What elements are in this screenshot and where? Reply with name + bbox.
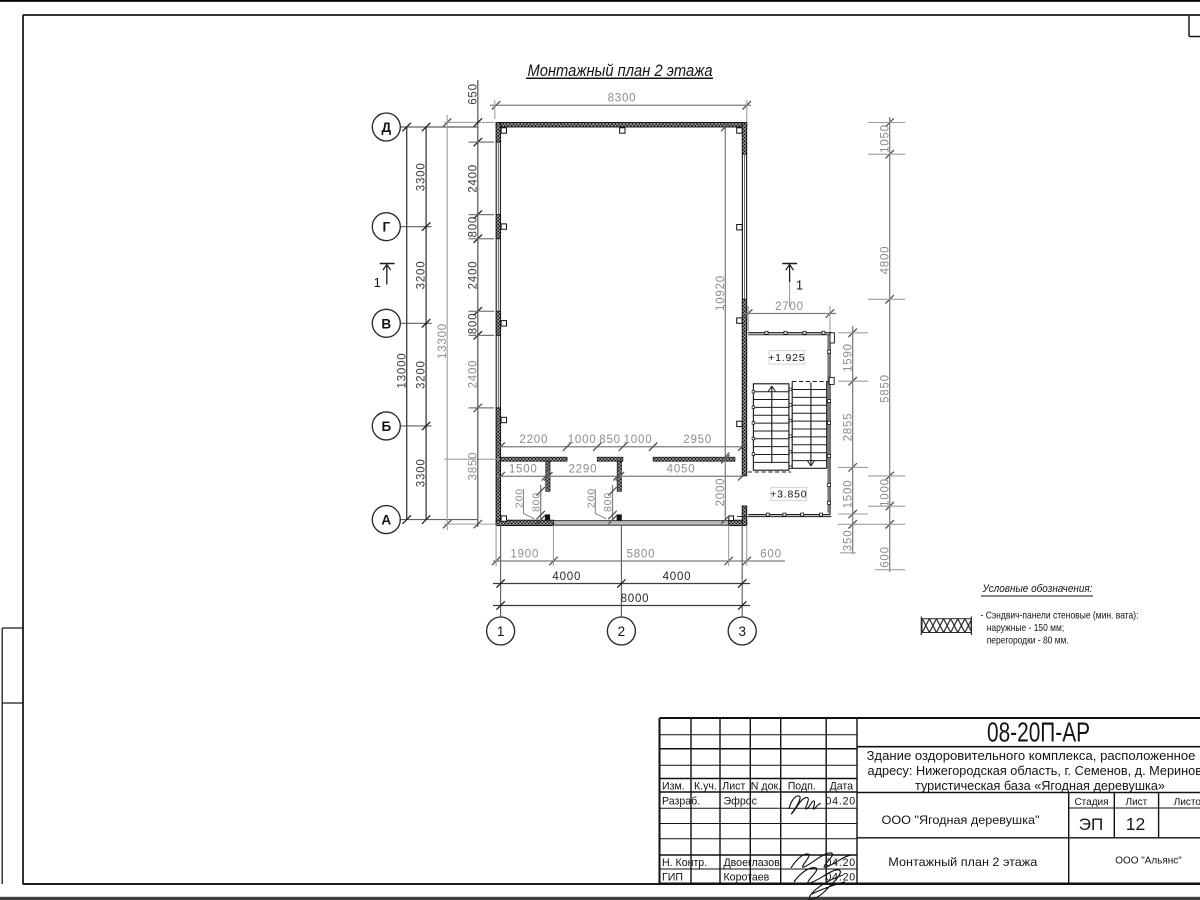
svg-text:Эфрос: Эфрос bbox=[724, 796, 758, 808]
svg-text:1000: 1000 bbox=[880, 478, 892, 507]
svg-text:Коротаев: Коротаев bbox=[724, 871, 770, 883]
svg-text:3300: 3300 bbox=[416, 458, 428, 487]
svg-text:Здание оздоровительного компле: Здание оздоровительного комплекса, распо… bbox=[867, 749, 1200, 763]
svg-text:Изм.: Изм. bbox=[662, 780, 685, 792]
svg-text:1: 1 bbox=[796, 278, 803, 293]
svg-text:К.уч.: К.уч. bbox=[694, 780, 717, 792]
svg-text:200: 200 bbox=[585, 488, 597, 508]
svg-text:Д: Д bbox=[381, 120, 391, 135]
svg-text:+1.925: +1.925 bbox=[768, 352, 805, 364]
svg-text:перегородки - 80 мм.: перегородки - 80 мм. bbox=[987, 635, 1069, 647]
svg-text:2200: 2200 bbox=[519, 434, 548, 446]
svg-text:2400: 2400 bbox=[467, 360, 479, 389]
svg-text:2000: 2000 bbox=[715, 478, 727, 507]
svg-text:4000: 4000 bbox=[663, 571, 692, 583]
svg-text:Условные обозначения:: Условные обозначения: bbox=[982, 583, 1093, 595]
svg-text:4000: 4000 bbox=[552, 571, 581, 583]
svg-text:Лист: Лист bbox=[722, 780, 745, 792]
svg-text:Лист: Лист bbox=[1126, 797, 1148, 808]
svg-text:2400: 2400 bbox=[467, 261, 479, 290]
svg-text:13000: 13000 bbox=[396, 353, 408, 389]
svg-text:800: 800 bbox=[467, 313, 479, 335]
svg-text:12: 12 bbox=[1126, 814, 1145, 834]
svg-text:Монтажный план 2 этажа: Монтажный план 2 этажа bbox=[528, 62, 713, 80]
svg-text:- Сэндвич-панели стеновые (мин: - Сэндвич-панели стеновые (мин. вата): bbox=[981, 610, 1139, 622]
svg-text:3: 3 bbox=[738, 624, 746, 639]
svg-text:650: 650 bbox=[467, 83, 479, 105]
svg-text:10920: 10920 bbox=[715, 275, 727, 311]
svg-text:N док.: N док. bbox=[751, 780, 781, 792]
svg-text:1000: 1000 bbox=[624, 434, 653, 446]
svg-text:200: 200 bbox=[514, 488, 526, 508]
svg-text:В: В bbox=[381, 316, 391, 331]
svg-text:600: 600 bbox=[880, 546, 892, 568]
svg-text:Подп.: Подп. bbox=[788, 780, 816, 792]
svg-text:1500: 1500 bbox=[509, 464, 538, 476]
svg-text:8000: 8000 bbox=[621, 593, 650, 605]
svg-text:3200: 3200 bbox=[416, 360, 428, 389]
svg-text:адресу: Нижегородская область,: адресу: Нижегородская область, г. Семено… bbox=[868, 764, 1200, 778]
svg-text:2400: 2400 bbox=[467, 164, 479, 193]
svg-text:08-20П-АР: 08-20П-АР bbox=[987, 717, 1090, 748]
svg-text:ООО "Альянс": ООО "Альянс" bbox=[1115, 856, 1182, 867]
svg-text:туристическая база «Ягодная де: туристическая база «Ягодная деревушка» bbox=[915, 779, 1165, 793]
svg-text:4800: 4800 bbox=[880, 246, 892, 275]
svg-text:ГИП: ГИП bbox=[662, 871, 683, 883]
svg-text:А: А bbox=[381, 513, 391, 528]
svg-text:800: 800 bbox=[602, 492, 614, 512]
svg-text:5850: 5850 bbox=[880, 374, 892, 403]
svg-text:1050: 1050 bbox=[880, 124, 892, 153]
svg-text:Разраб.: Разраб. bbox=[662, 796, 700, 808]
svg-text:Двоеглазов: Двоеглазов bbox=[724, 857, 781, 869]
svg-text:наружные - 150 мм;: наружные - 150 мм; bbox=[987, 622, 1064, 634]
svg-text:3850: 3850 bbox=[467, 452, 479, 481]
svg-text:Дата: Дата bbox=[830, 780, 854, 792]
svg-text:2: 2 bbox=[618, 624, 626, 639]
svg-text:1500: 1500 bbox=[843, 480, 855, 509]
svg-text:1: 1 bbox=[497, 624, 505, 639]
svg-text:2700: 2700 bbox=[775, 301, 804, 313]
svg-text:13300: 13300 bbox=[437, 323, 449, 359]
svg-text:2290: 2290 bbox=[568, 464, 597, 476]
svg-text:Монтажный план 2 этажа: Монтажный план 2 этажа bbox=[888, 855, 1037, 869]
svg-text:ООО "Ягодная деревушка": ООО "Ягодная деревушка" bbox=[882, 813, 1040, 827]
svg-text:800: 800 bbox=[467, 216, 479, 238]
svg-text:Стадия: Стадия bbox=[1074, 797, 1108, 808]
svg-text:Г: Г bbox=[382, 220, 390, 235]
svg-text:ЭП: ЭП bbox=[1079, 815, 1103, 834]
svg-text:04.20: 04.20 bbox=[825, 796, 856, 808]
svg-text:3200: 3200 bbox=[416, 261, 428, 290]
svg-text:1590: 1590 bbox=[843, 343, 855, 372]
svg-text:8300: 8300 bbox=[608, 93, 637, 105]
svg-text:800: 800 bbox=[530, 492, 542, 512]
svg-text:1900: 1900 bbox=[510, 549, 539, 561]
svg-text:3300: 3300 bbox=[416, 162, 428, 191]
svg-text:2950: 2950 bbox=[683, 434, 712, 446]
svg-text:2855: 2855 bbox=[843, 413, 855, 442]
svg-text:Б: Б bbox=[381, 419, 391, 434]
svg-text:5800: 5800 bbox=[627, 549, 656, 561]
svg-text:600: 600 bbox=[760, 549, 782, 561]
svg-text:350: 350 bbox=[843, 530, 855, 552]
svg-text:4050: 4050 bbox=[667, 464, 696, 476]
svg-text:850: 850 bbox=[599, 434, 621, 446]
svg-text:1000: 1000 bbox=[568, 434, 597, 446]
svg-text:Н. Контр.: Н. Контр. bbox=[662, 857, 707, 869]
svg-text:Листов: Листов bbox=[1174, 797, 1200, 808]
svg-text:1: 1 bbox=[374, 275, 381, 290]
svg-text:+3.850: +3.850 bbox=[770, 488, 807, 500]
